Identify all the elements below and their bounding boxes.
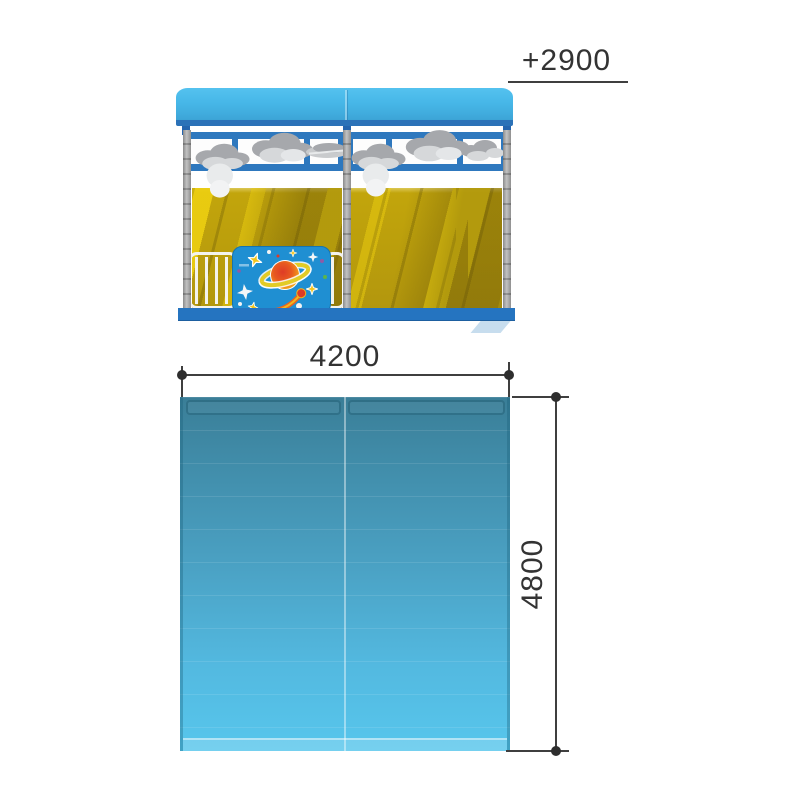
cloud-icon bbox=[252, 133, 313, 163]
star-icon bbox=[308, 252, 319, 263]
dot-decor bbox=[237, 269, 241, 273]
space-art bbox=[233, 247, 331, 314]
cloud-icon bbox=[196, 144, 250, 198]
level-label: +2900 bbox=[505, 46, 628, 76]
roof bbox=[176, 88, 513, 126]
post-middle bbox=[343, 130, 351, 320]
post-right bbox=[503, 130, 511, 320]
dot-decor bbox=[277, 255, 280, 258]
level-line bbox=[508, 81, 628, 83]
width-dimension-label: 4200 bbox=[285, 342, 405, 372]
cloud-icon bbox=[461, 140, 504, 161]
base-strip bbox=[178, 308, 515, 321]
dot-decor bbox=[238, 302, 242, 306]
dot-decor bbox=[267, 250, 271, 254]
plan-center-seam bbox=[344, 397, 346, 751]
dimension-endpoint-dot bbox=[504, 370, 514, 380]
depth-dimension-line bbox=[555, 397, 557, 752]
star-icon bbox=[236, 283, 254, 301]
star-icon bbox=[289, 249, 297, 257]
ground-shadow bbox=[471, 320, 512, 333]
dimension-endpoint-dot bbox=[551, 746, 561, 756]
plan-roof-module-right bbox=[348, 400, 505, 415]
plan-bottom-edge bbox=[183, 738, 507, 751]
plan-roof-module-left bbox=[186, 400, 341, 415]
wall-right-bay bbox=[351, 188, 502, 308]
dimension-endpoint-dot bbox=[177, 370, 187, 380]
dot-decor bbox=[320, 259, 324, 263]
cloud-icon bbox=[352, 144, 406, 197]
post-left bbox=[183, 130, 191, 320]
railing-left bbox=[188, 252, 238, 309]
dimension-endpoint-dot bbox=[551, 392, 561, 402]
cloud-icon bbox=[306, 143, 348, 158]
cloud-icon bbox=[406, 130, 470, 161]
roof-seam bbox=[345, 90, 347, 120]
drawing-canvas: +2900 4200 4800 bbox=[0, 0, 800, 800]
space-theme-panel bbox=[232, 246, 331, 314]
panel-logo bbox=[239, 264, 249, 267]
star-icon bbox=[306, 283, 317, 294]
depth-dimension-label: 4800 bbox=[518, 514, 548, 634]
dot-decor bbox=[323, 275, 327, 279]
width-dimension-line bbox=[182, 374, 509, 376]
